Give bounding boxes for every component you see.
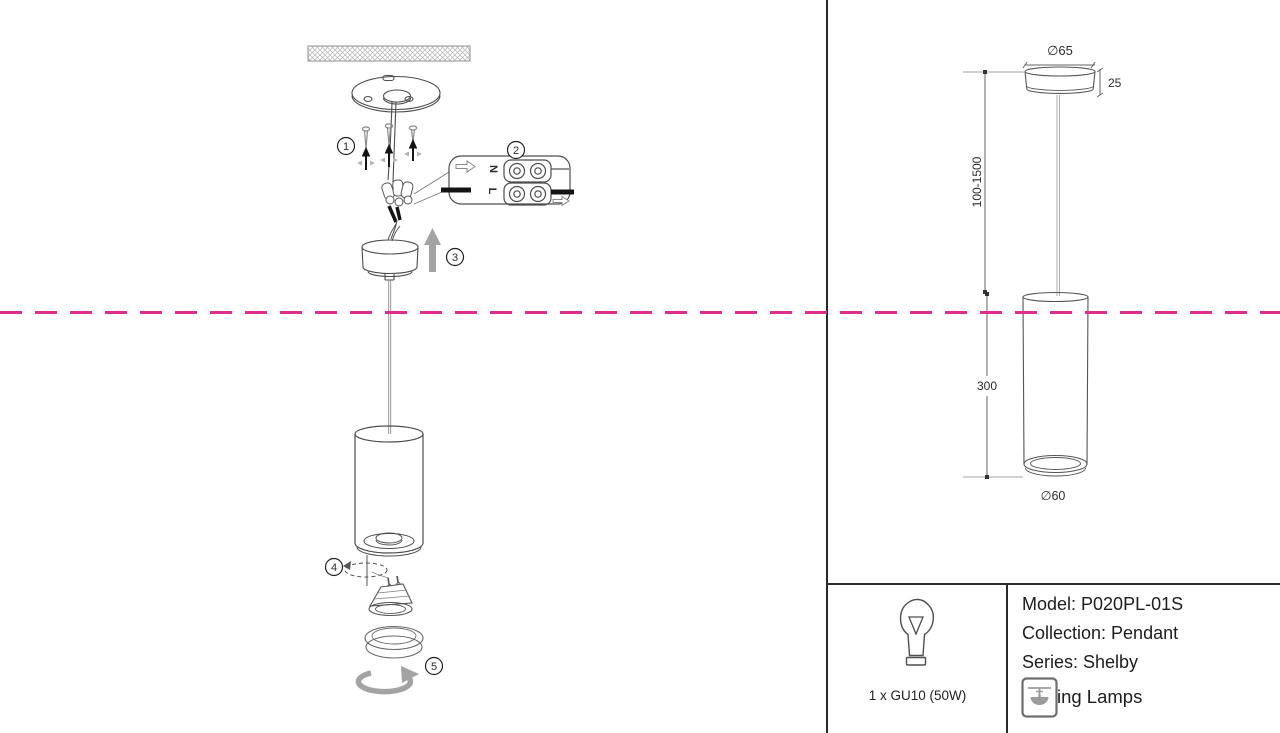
body-outline: [1023, 293, 1088, 477]
cut-line-dashed: [0, 311, 1280, 314]
category-row: Ceilling Lamps: [1021, 686, 1142, 708]
step-5-badge: 5: [426, 658, 443, 675]
lamp-spec-section: 1 x GU10 (50W): [829, 585, 1006, 733]
installation-diagram: 1 N L: [0, 0, 826, 733]
ceiling-lamp-icon: [1021, 677, 1058, 718]
lamp-spec-text: 1 x GU10 (50W): [829, 688, 1006, 703]
dimension-drawing: ∅65 25 100-1500: [828, 0, 1280, 583]
dim-suspension-length: 100-1500: [970, 156, 984, 207]
dim-body-diameter: ∅60: [1041, 489, 1066, 503]
terminal-l-label: L: [486, 188, 498, 195]
product-info-section: Model: P020PL-01S Collection: Pendant Se…: [1008, 585, 1280, 733]
canopy: [362, 224, 418, 280]
step-4-badge: 4: [326, 559, 343, 576]
step-5-number: 5: [431, 661, 437, 673]
model-text: Model: P020PL-01S: [1022, 594, 1183, 615]
wiring-detail-box: [441, 156, 574, 206]
canopy-outline: [1025, 67, 1095, 93]
lamp-body: [355, 426, 423, 556]
up-arrow-icon: [424, 228, 441, 272]
bulb-icon: [889, 593, 945, 671]
step-3-number: 3: [452, 252, 458, 264]
cord-line: [1057, 95, 1060, 296]
step-1-badge: 1: [338, 138, 355, 155]
step-1-number: 1: [343, 141, 349, 153]
panel-divider: [826, 0, 828, 733]
collection-text: Collection: Pendant: [1022, 623, 1178, 644]
step-3-badge: 3: [447, 249, 464, 266]
gu10-bulb: [369, 576, 412, 616]
terminal-n-label: N: [487, 165, 499, 173]
mounting-screws: [357, 124, 422, 170]
dim-body-height: 300: [977, 379, 997, 393]
step-2-badge: 2: [508, 142, 525, 159]
instruction-sheet: 1 N L: [0, 0, 1280, 733]
rotate-arrow-icon: [358, 666, 419, 692]
rotate-dashed-icon: [343, 555, 389, 586]
suspension-cord: [389, 280, 391, 434]
ceiling-hatch: [308, 46, 470, 61]
step-4-number: 4: [331, 562, 337, 574]
step-2-number: 2: [513, 145, 519, 157]
trim-ring: [365, 627, 423, 659]
dim-canopy-diameter: ∅65: [1047, 43, 1073, 58]
dim-canopy-height: 25: [1108, 76, 1122, 90]
series-text: Series: Shelby: [1022, 652, 1138, 673]
